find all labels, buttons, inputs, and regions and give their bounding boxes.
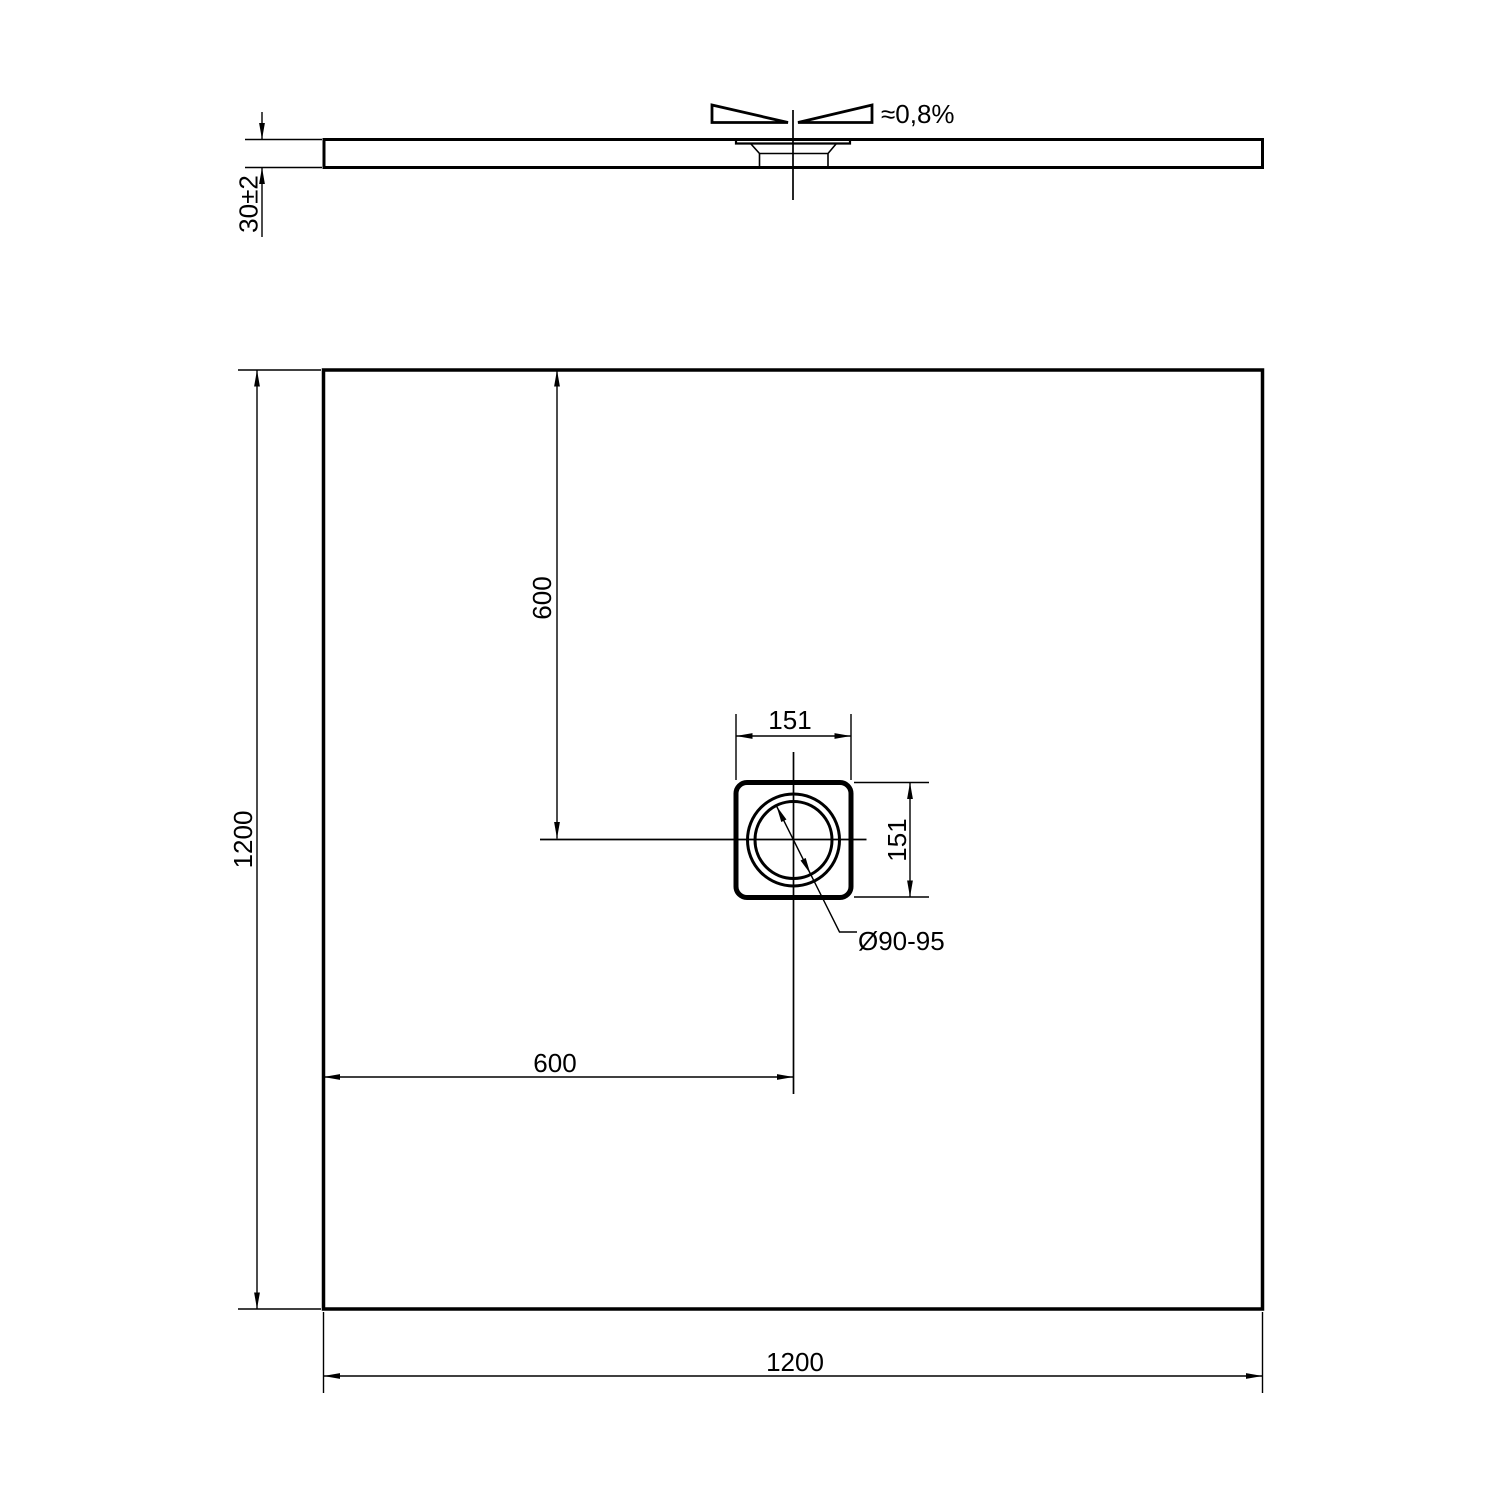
slope-label: ≈0,8%: [881, 99, 955, 129]
shower-tray-technical-drawing: ≈0,8% 30±2 1200 1200 600 600: [0, 0, 1500, 1500]
drain-diameter-label: Ø90-95: [858, 926, 945, 956]
slope-wedge-left: [712, 105, 788, 123]
flange-height-label: 151: [882, 818, 912, 861]
thickness-dim-label: 30±2: [234, 175, 264, 233]
slope-wedge-right: [798, 105, 872, 123]
width-dim-label: 1200: [766, 1347, 824, 1377]
plan-view: 1200 1200 600 600 151 151 Ø90-95: [228, 370, 1263, 1393]
drawing-canvas: ≈0,8% 30±2 1200 1200 600 600: [0, 0, 1500, 1500]
side-view: ≈0,8% 30±2: [234, 99, 1263, 237]
drain-offset-horizontal-label: 600: [533, 1048, 576, 1078]
drain-offset-vertical-label: 600: [527, 576, 557, 619]
depth-dim-label: 1200: [228, 811, 258, 869]
flange-width-label: 151: [768, 705, 811, 735]
